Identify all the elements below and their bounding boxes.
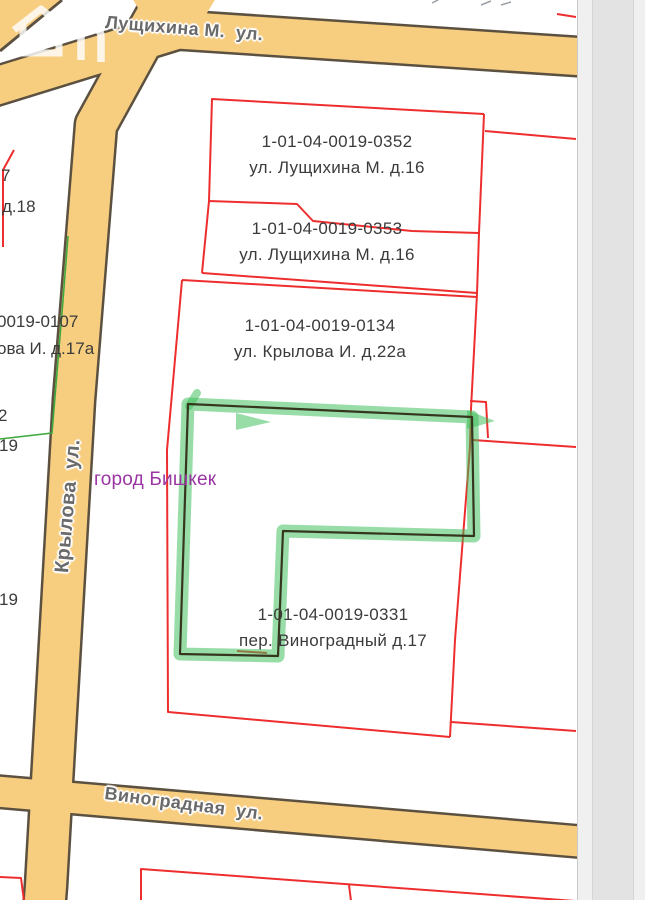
partial-label-2: 2 [0,406,7,426]
parcel-label-0331[interactable]: 1-01-04-0019-0331 пер. Виноградный д.17 [213,602,453,654]
partial-label-0107: 0019-0107 [0,312,78,332]
parcel-address: ул. Крылова И. д.22а [200,339,440,365]
partial-label-7: 7 [1,166,10,186]
parcel-address: ул. Лущихина М. д.16 [217,155,457,181]
parcel-label-0353[interactable]: 1-01-04-0019-0353 ул. Лущихина М. д.16 [207,216,447,268]
partial-label-17a: ова И. д.17а [0,339,94,359]
parcel-east-extensions[interactable] [451,14,576,731]
parcel-id: 1-01-04-0019-0352 [217,129,457,155]
parcel-id: 1-01-04-0019-0353 [207,216,447,242]
partial-label-d18: д.18 [2,197,36,217]
map-viewport[interactable]: Лущихина М. ул. Крылова ул. Виноградная … [0,0,645,900]
parcel-label-0134[interactable]: 1-01-04-0019-0134 ул. Крылова И. д.22а [200,313,440,365]
selection-arrow-mark [236,413,271,430]
city-label: город Бишкек [94,469,216,491]
parcel-id: 1-01-04-0019-0331 [213,602,453,628]
top-edge-marks [432,0,511,5]
parcel-address: пер. Виноградный д.17 [213,628,453,654]
parcel-address: ул. Лущихина М. д.16 [207,242,447,268]
street-corner-wedge [0,0,60,49]
partial-label-19b: 19 [0,590,18,610]
scrollbar-track[interactable] [577,0,645,900]
parcel-id: 1-01-04-0019-0134 [200,313,440,339]
scrollbar-thumb[interactable] [592,0,634,900]
parcel-label-0352[interactable]: 1-01-04-0019-0352 ул. Лущихина М. д.16 [217,129,457,181]
partial-label-19a: 19 [0,436,18,456]
